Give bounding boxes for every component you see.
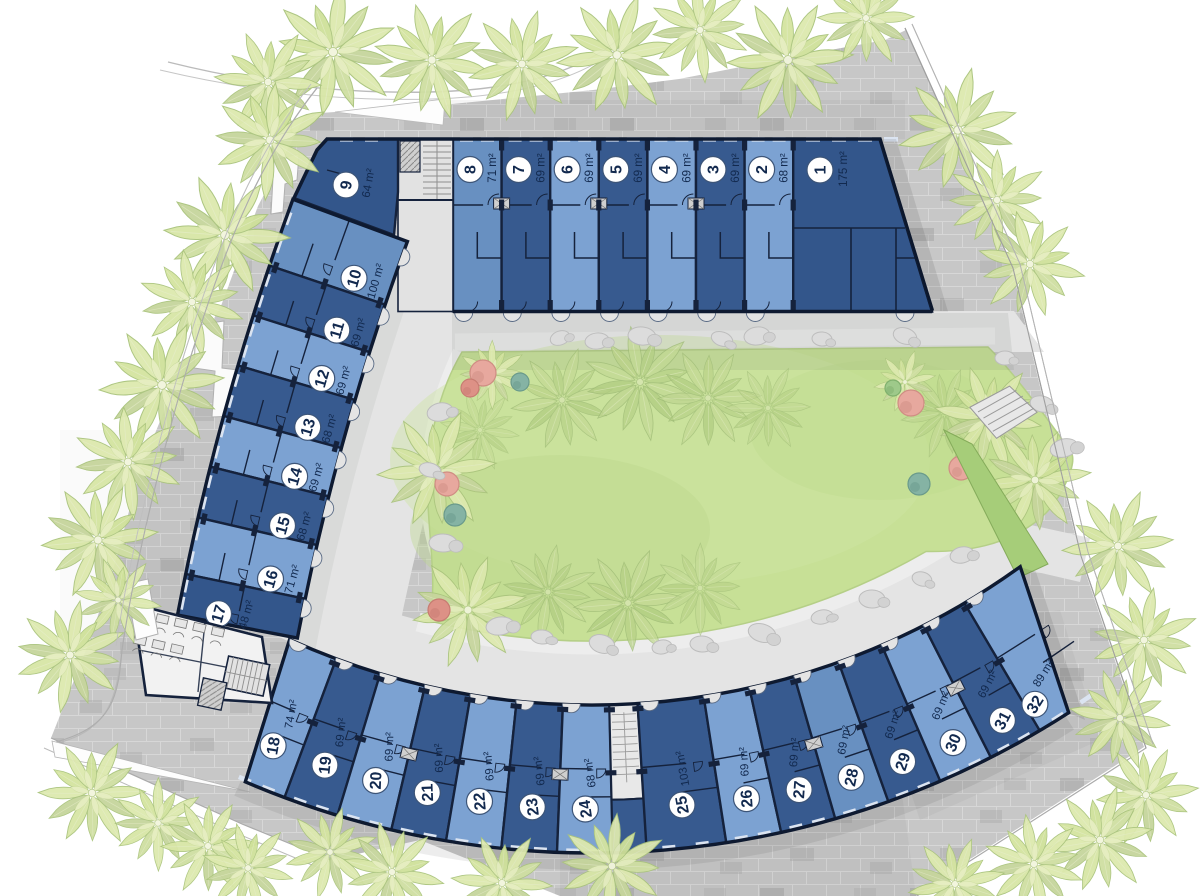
svg-text:69 m²: 69 m² xyxy=(738,746,752,776)
svg-text:23: 23 xyxy=(524,797,543,817)
svg-text:18: 18 xyxy=(264,736,284,757)
svg-text:71 m²: 71 m² xyxy=(487,153,499,183)
svg-text:69 m²: 69 m² xyxy=(383,732,396,762)
svg-text:69 m²: 69 m² xyxy=(788,737,802,767)
svg-text:21: 21 xyxy=(419,783,437,801)
svg-text:68 m²: 68 m² xyxy=(779,153,791,183)
svg-text:2: 2 xyxy=(754,165,771,174)
svg-text:26: 26 xyxy=(738,789,756,808)
svg-text:69 m²: 69 m² xyxy=(482,751,497,781)
svg-text:175 m²: 175 m² xyxy=(838,151,850,187)
svg-text:69 m²: 69 m² xyxy=(681,153,693,183)
svg-text:69 m²: 69 m² xyxy=(730,153,742,183)
svg-text:24: 24 xyxy=(577,799,596,819)
svg-text:6: 6 xyxy=(560,165,577,174)
svg-text:69 m²: 69 m² xyxy=(633,153,645,183)
svg-text:5: 5 xyxy=(608,165,625,174)
svg-text:22: 22 xyxy=(471,792,489,811)
svg-text:20: 20 xyxy=(368,771,386,789)
svg-text:3: 3 xyxy=(706,165,723,174)
svg-text:28: 28 xyxy=(842,767,862,788)
svg-text:69 m²: 69 m² xyxy=(433,743,446,773)
svg-text:69 m²: 69 m² xyxy=(584,153,596,183)
svg-text:27: 27 xyxy=(791,780,809,799)
svg-text:25: 25 xyxy=(673,794,693,815)
svg-text:8: 8 xyxy=(463,165,480,174)
svg-text:7: 7 xyxy=(511,165,528,174)
svg-text:19: 19 xyxy=(317,755,336,775)
svg-text:4: 4 xyxy=(657,165,674,174)
svg-text:1: 1 xyxy=(813,165,830,174)
svg-text:69 m²: 69 m² xyxy=(536,153,548,183)
